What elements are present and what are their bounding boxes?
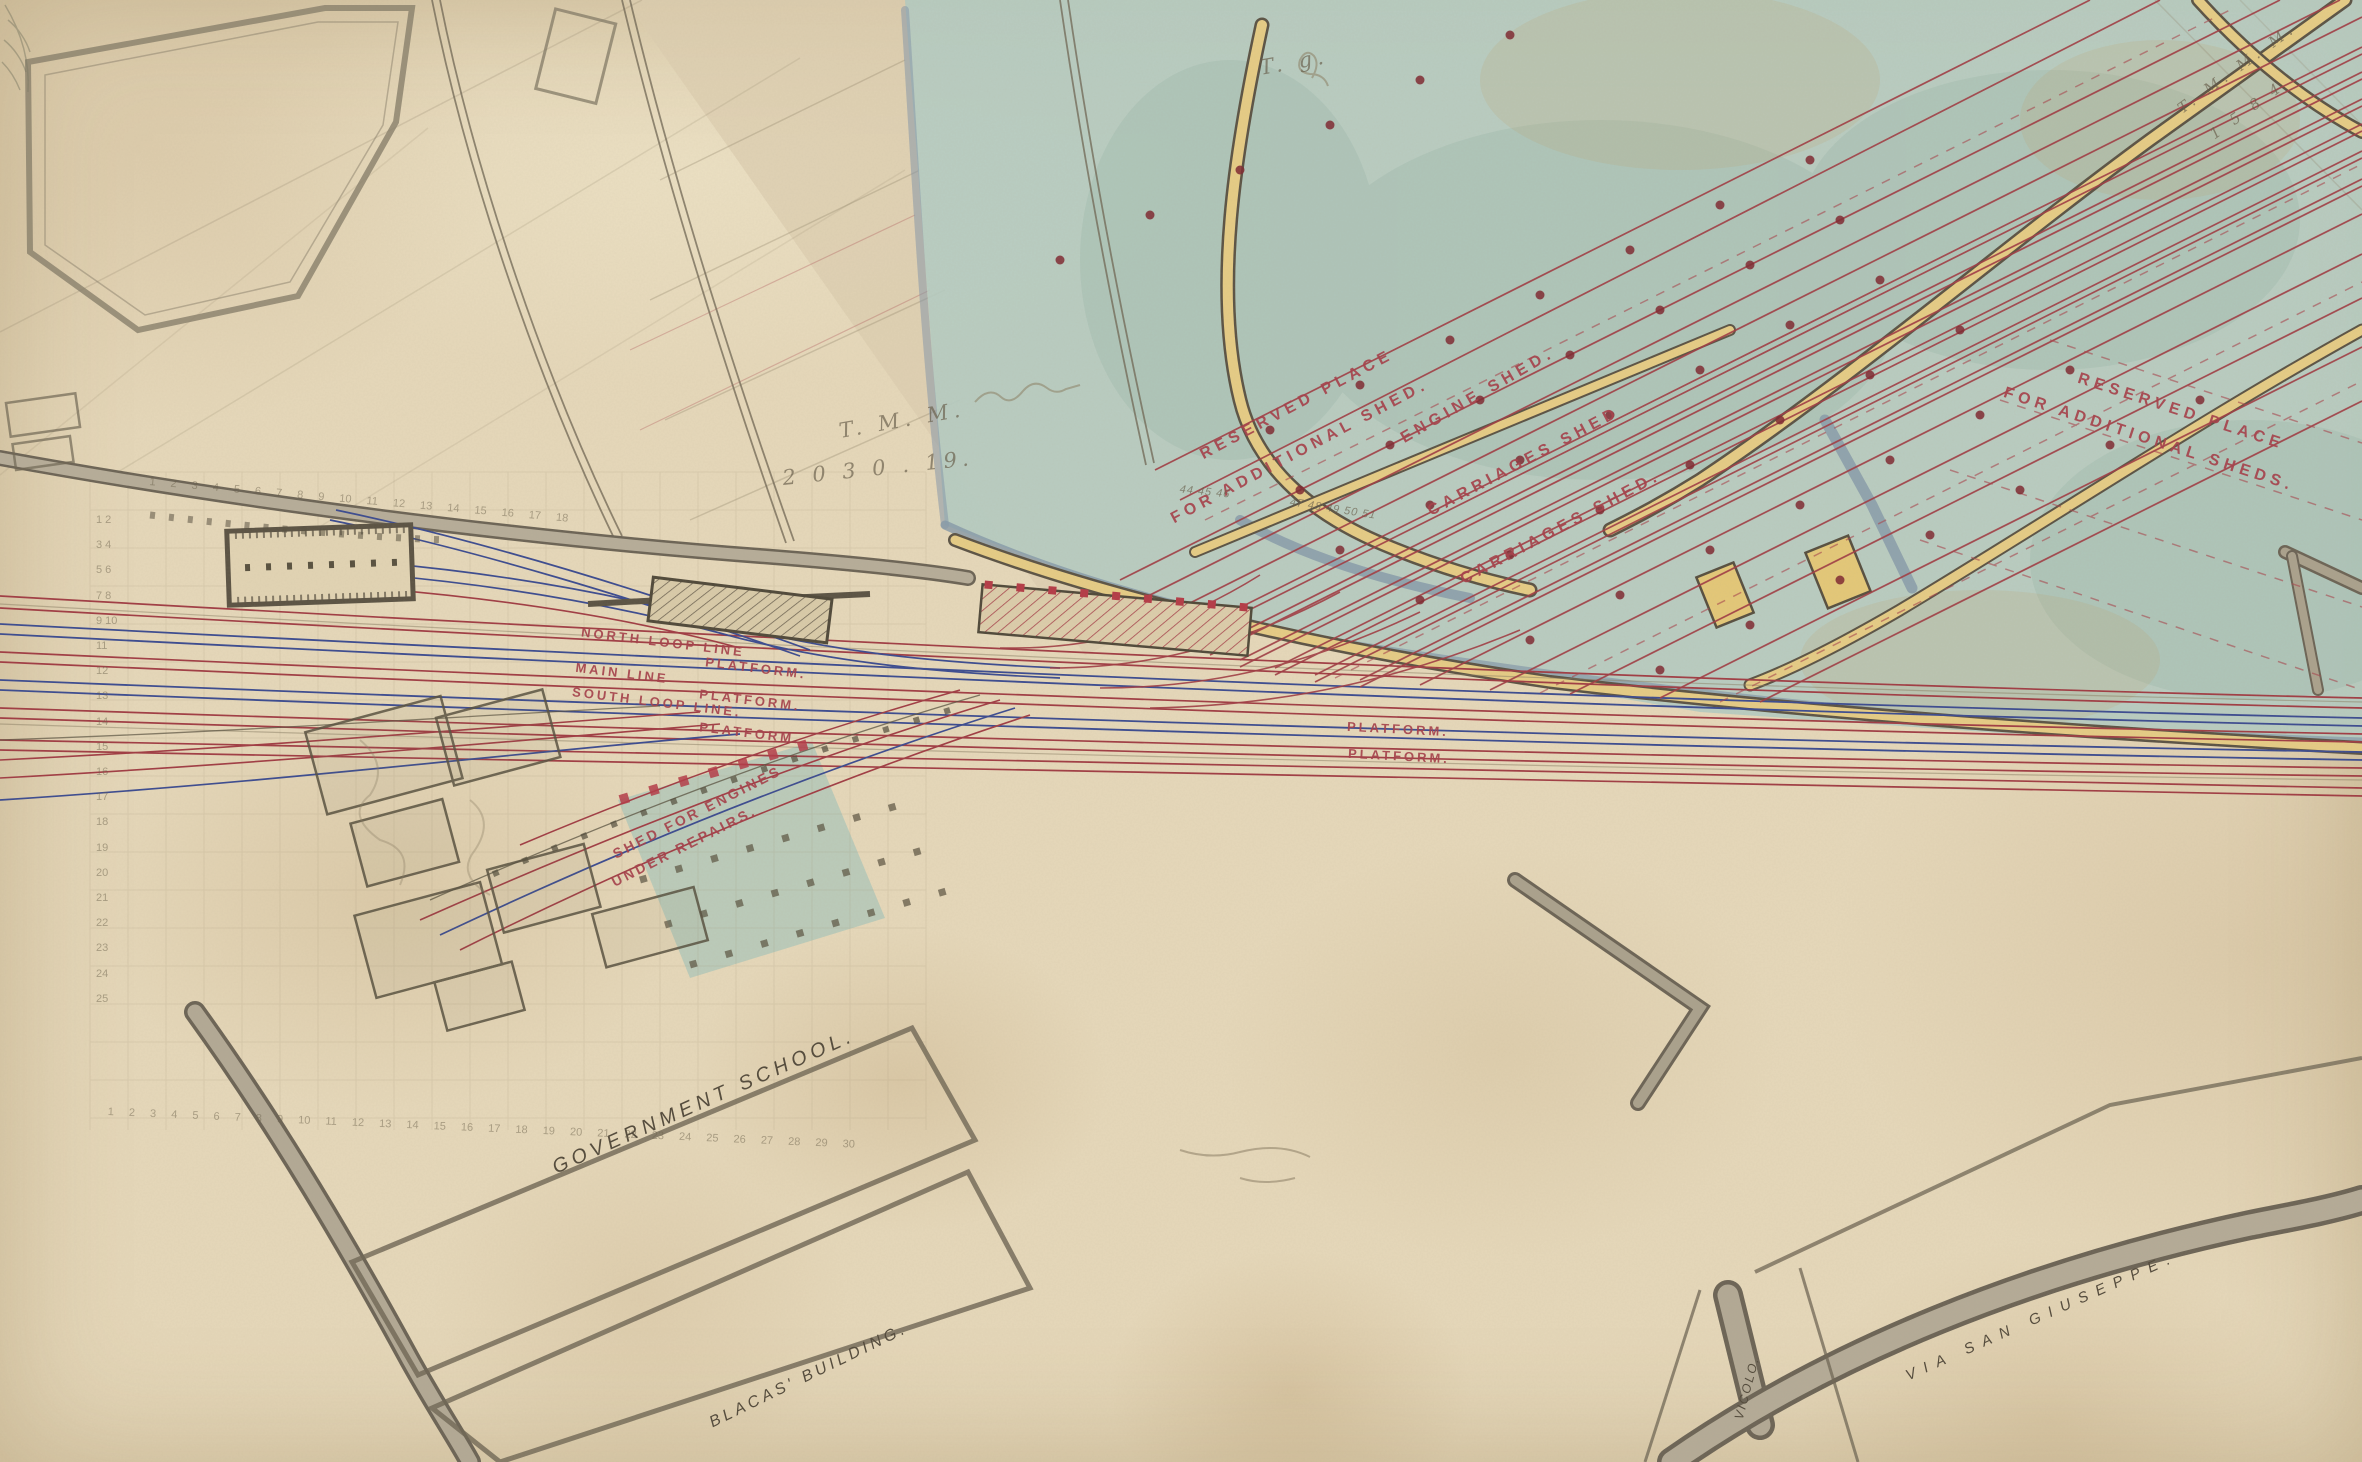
map-drawing <box>0 0 2362 1462</box>
railway-plan-map: RESERVED PLACE FOR ADDITIONAL SHED. ENGI… <box>0 0 2362 1462</box>
pencil-grid-numbers-left: 1 2 3 4 5 6 7 8 9 10 11 12 13 14 15 16 1… <box>96 508 120 1012</box>
paper-grain-overlay <box>0 0 2362 1462</box>
